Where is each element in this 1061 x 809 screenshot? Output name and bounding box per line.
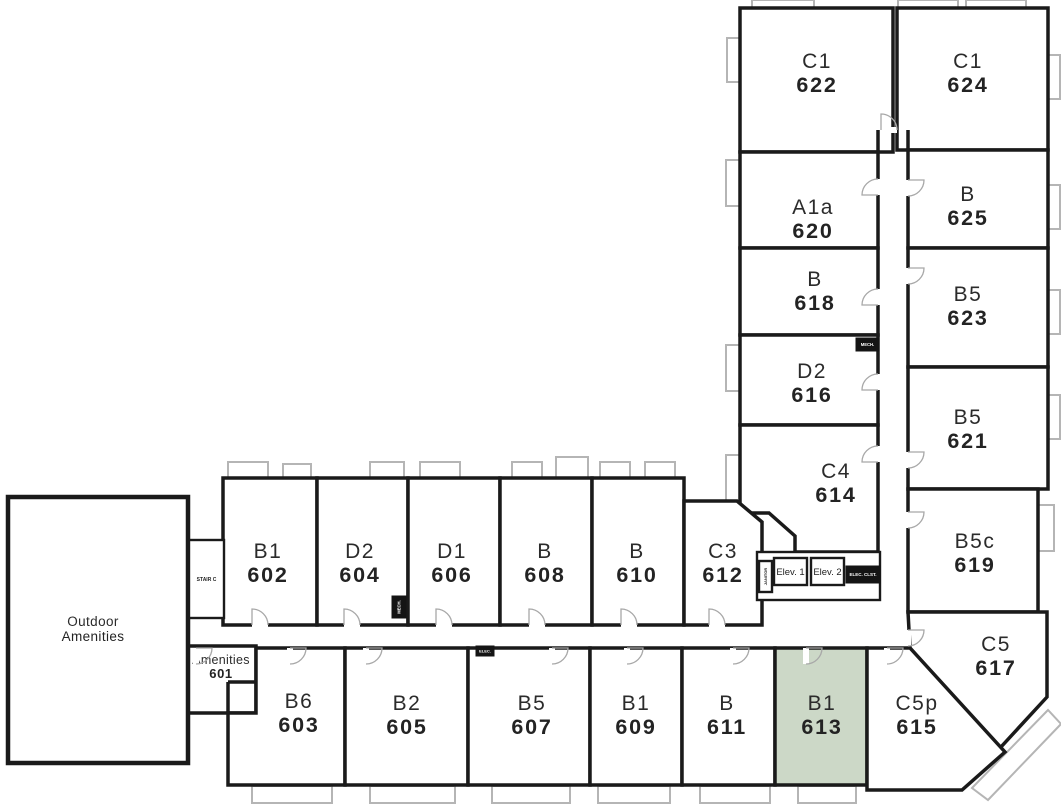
unit-type-label: B6 (285, 690, 314, 713)
unit-number-label: 623 (947, 306, 988, 330)
unit-type-label: Amenities (192, 653, 250, 667)
door-opening (529, 622, 545, 628)
unit-type-label: B (537, 540, 553, 563)
stair-c: STAIR C (189, 540, 224, 618)
door-opening (436, 622, 452, 628)
unit-608[interactable]: B608 (500, 478, 592, 625)
window-bay (726, 160, 740, 206)
unit-number-label: 622 (796, 73, 837, 97)
unit-type-label: Outdoor (67, 614, 119, 629)
unit-602[interactable]: B1602 (223, 478, 317, 625)
door-opening (252, 622, 268, 628)
unit-number-label: 617 (975, 656, 1016, 680)
unit-number-label: 621 (947, 429, 988, 453)
window-bay (700, 786, 770, 803)
unit-type-label: C5p (895, 692, 938, 715)
unit-number-label: 620 (792, 219, 833, 243)
unit-number-label: 603 (278, 713, 319, 737)
mech-closet-wing-label: MECH. (396, 600, 401, 614)
room-shape (908, 150, 1048, 248)
unit-number-label: 601 (209, 666, 233, 681)
door-opening (884, 648, 890, 664)
window-bay (228, 462, 268, 478)
door-opening (905, 452, 911, 468)
door-opening (621, 622, 637, 628)
unit-613[interactable]: B1613 (775, 648, 867, 785)
janitor-closet: JANITOR (759, 561, 772, 592)
unit-number-label: Amenities (62, 629, 125, 644)
elec-closet-wing-label: ELEC. (479, 648, 491, 653)
elec-closet: ELEC. CLST. (846, 566, 880, 583)
unit-number-label: 612 (702, 563, 743, 587)
mech-closet-wing: MECH. (392, 596, 406, 618)
unit-type-label: B5 (954, 406, 983, 429)
unit-number-label: 611 (707, 715, 747, 739)
window-bay (1048, 395, 1060, 439)
unit-number-label: 602 (247, 563, 288, 587)
unit-619[interactable]: B5c619 (908, 489, 1038, 612)
unit-610[interactable]: B610 (592, 478, 684, 625)
unit-type-label: D2 (797, 360, 827, 383)
door-opening (287, 648, 293, 664)
elevator-1-label: Elev. 1 (776, 567, 804, 578)
door-opening (730, 648, 736, 664)
window-bay (726, 455, 740, 501)
mech-closet-tower-label: MECH. (861, 342, 875, 347)
window-bay (492, 786, 570, 803)
elec-closet-label: ELEC. CLST. (849, 572, 876, 577)
unit-611[interactable]: B611 (682, 648, 775, 785)
window-bay (252, 786, 332, 803)
janitor-closet-label: JANITOR (763, 568, 768, 586)
elec-closet-wing: ELEC. (476, 646, 494, 656)
unit-number-label: 613 (801, 715, 842, 739)
door-opening (549, 648, 555, 664)
window-bay (370, 786, 455, 803)
unit-number-label: 625 (947, 206, 988, 230)
unit-number-label: 614 (815, 483, 856, 507)
stair-c-label: STAIR C (197, 577, 217, 583)
unit-618[interactable]: B618 (740, 248, 878, 335)
unit-type-label: D1 (437, 540, 467, 563)
door-opening (875, 446, 881, 462)
unit-type-label: B (719, 692, 735, 715)
unit-number-label: 605 (386, 715, 427, 739)
window-bay (1048, 185, 1060, 229)
door-opening (709, 622, 725, 628)
unit-type-label: C3 (708, 540, 738, 563)
unit-type-label: B1 (622, 692, 651, 715)
unit-number-label: 604 (339, 563, 380, 587)
unit-609[interactable]: B1609 (590, 648, 682, 785)
door-opening (905, 512, 911, 528)
unit-number-label: 608 (524, 563, 565, 587)
elevator-2: Elev. 2 (811, 558, 844, 585)
window-bay (420, 462, 460, 478)
door-opening (905, 180, 911, 196)
door-opening (905, 268, 911, 284)
window-bay (645, 462, 675, 478)
floorplan-canvas: C1622C1624A1a620B625B618B5623D2616B5621C… (0, 0, 1061, 809)
window-bay (1048, 290, 1060, 334)
unit-622[interactable]: C1622 (740, 8, 893, 152)
unit-number-label: 609 (615, 715, 656, 739)
window-bay (370, 462, 404, 478)
unit-type-label: C5 (981, 633, 1011, 656)
unit-type-label: C4 (821, 460, 851, 483)
outdoor-amenities: OutdoorAmenities (8, 497, 188, 763)
mech-closet-tower: MECH. (856, 338, 879, 351)
unit-number-label: 607 (511, 715, 552, 739)
door-opening (624, 648, 630, 664)
unit-type-label: B1 (808, 692, 837, 715)
elevator-1: Elev. 1 (774, 558, 807, 585)
unit-number-label: 615 (896, 715, 937, 739)
window-bay (798, 786, 856, 803)
unit-625[interactable]: B625 (908, 150, 1048, 248)
door-opening (363, 648, 369, 664)
window-bay (283, 464, 311, 478)
window-bay (1048, 55, 1060, 99)
unit-606[interactable]: D1606 (408, 478, 500, 625)
unit-type-label: C1 (953, 50, 983, 73)
unit-623[interactable]: B5623 (908, 248, 1048, 367)
window-bay (1038, 505, 1054, 551)
unit-type-label: B5 (954, 283, 983, 306)
window-bay (512, 462, 542, 478)
unit-type-label: B (807, 268, 823, 291)
door-opening (344, 622, 360, 628)
door-opening (905, 630, 911, 646)
door-opening (875, 374, 881, 390)
window-bay (727, 38, 740, 82)
window-bay (556, 457, 588, 478)
unit-number-label: 616 (791, 383, 832, 407)
unit-type-label: D2 (345, 540, 375, 563)
unit-type-label: A1a (792, 196, 834, 219)
window-bay (598, 786, 670, 803)
unit-type-label: B2 (393, 692, 422, 715)
unit-type-label: B1 (254, 540, 283, 563)
unit-621[interactable]: B5621 (908, 367, 1048, 489)
unit-620[interactable]: A1a620 (740, 152, 878, 248)
unit-612[interactable]: C3612 (684, 501, 762, 625)
unit-type-label: B (629, 540, 645, 563)
unit-number-label: 619 (954, 553, 995, 577)
door-opening (803, 648, 809, 664)
unit-607[interactable]: B5607 (468, 648, 590, 785)
elevator-2-label: Elev. 2 (813, 567, 841, 578)
unit-624[interactable]: C1624 (897, 8, 1048, 150)
unit-type-label: B (960, 183, 976, 206)
unit-number-label: 606 (431, 563, 472, 587)
unit-type-label: B5 (518, 692, 547, 715)
window-bay (600, 462, 630, 478)
unit-number-label: 610 (616, 563, 657, 587)
unit-type-label: C1 (802, 50, 832, 73)
unit-605[interactable]: B2605 (345, 648, 468, 785)
unit-type-label: B5c (955, 530, 996, 553)
door-opening (881, 127, 897, 133)
unit-number-label: 624 (947, 73, 988, 97)
rooms-layer: C1622C1624A1a620B625B618B5623D2616B5621C… (8, 8, 1048, 790)
door-opening (875, 179, 881, 195)
window-bay (726, 345, 740, 391)
unit-number-label: 618 (794, 291, 835, 315)
door-opening (875, 289, 881, 305)
door-opening (193, 648, 199, 664)
